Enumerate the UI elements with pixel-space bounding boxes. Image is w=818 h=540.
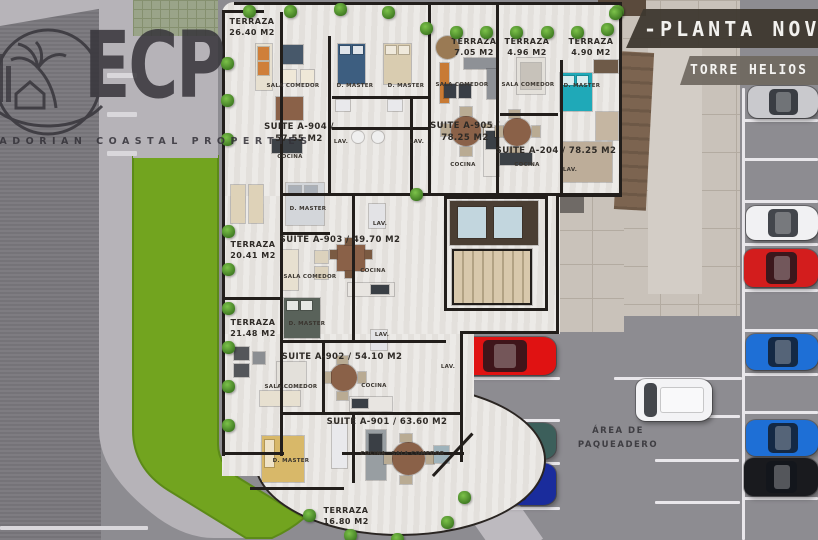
parking-stall-line [744, 411, 818, 414]
parking-stall-line [744, 289, 818, 292]
wall-segment [545, 199, 548, 310]
plant-icon [222, 225, 235, 238]
wall-segment [328, 36, 331, 194]
wall-segment [444, 308, 548, 311]
page-title: -PLANTA NOVENA [626, 17, 818, 41]
wall-segment [619, 2, 622, 197]
room-label: D. MASTER [388, 83, 425, 91]
car-roof [494, 344, 517, 368]
wall-segment [250, 487, 344, 490]
plant-icon [391, 533, 404, 540]
room-label: LAV. [375, 332, 389, 340]
suite-label: SUITE A-204 / 78.25 M2 [496, 146, 617, 158]
room-label: SALA COMEDOR [436, 82, 489, 90]
wall-segment [444, 196, 548, 199]
car-roof [775, 212, 791, 234]
wall-segment [282, 340, 446, 343]
wall-segment [496, 2, 499, 195]
car-roof [660, 387, 704, 414]
suite-label: SUITE A-901 / 63.60 M2 [327, 417, 448, 429]
plant-icon [601, 23, 614, 36]
chair [365, 250, 372, 259]
sofa-cushion [258, 47, 269, 60]
terrace-chair [234, 364, 249, 377]
subtitle-band: TORRE HELIOS [680, 56, 818, 85]
pillow [287, 301, 298, 310]
entry-plaza [558, 196, 624, 332]
wall-segment [500, 113, 558, 116]
dining-table [330, 364, 357, 391]
chair [532, 126, 540, 137]
room-label: LAV. [410, 139, 424, 147]
plant-icon [243, 5, 256, 18]
room-label: D. MASTER [290, 206, 327, 214]
sidewalk-upper [133, 36, 218, 158]
plant-icon [222, 263, 235, 276]
rug [281, 45, 303, 64]
wall-segment [352, 196, 355, 342]
white-car [746, 206, 818, 240]
terrace-label: TERRAZA 20.41 M2 [230, 239, 276, 261]
bath-fixture [336, 100, 350, 111]
wall-segment [332, 127, 428, 130]
wall-segment [282, 412, 462, 415]
room-label: D. MASTER [289, 321, 326, 329]
parking-stall-line [744, 373, 818, 376]
chair [460, 107, 472, 116]
room-label: D. MASTER [564, 83, 601, 91]
pillow [265, 440, 274, 452]
wall-segment [460, 331, 559, 334]
chair [330, 250, 337, 259]
plant-icon [480, 26, 493, 39]
architectural-floorplan-render: TERRAZA 26.40 M2TERRAZA 7.05 M2TERRAZA 4… [0, 0, 818, 540]
wardrobe [594, 60, 618, 73]
plant-icon [222, 380, 235, 393]
tower-name: TORRE HELIOS [690, 63, 808, 78]
plant-icon [344, 529, 357, 540]
room-label: SALA COMEDOR [267, 83, 320, 91]
blue-car [746, 334, 818, 370]
pillow [301, 301, 312, 310]
room-label: SALA COMEDOR [502, 82, 555, 90]
plant-icon [571, 26, 584, 39]
room-label: LAV. [441, 364, 455, 372]
plant-icon [382, 6, 395, 19]
elevator-cab [458, 207, 486, 238]
road-marking [107, 112, 137, 117]
terrace-label: TERRAZA 21.48 M2 [230, 317, 276, 339]
paver-crosswalk [133, 0, 218, 36]
terrace-label: TERRAZA 26.40 M2 [229, 16, 275, 38]
terrace-label: TERRAZA 4.90 M2 [569, 36, 614, 58]
wall-segment [560, 60, 563, 196]
terrace-label: TERRAZA 4.96 M2 [505, 36, 550, 58]
room-label: LAV. [334, 139, 348, 147]
room-label: D. MASTER [337, 83, 374, 91]
car-windshield [644, 383, 658, 417]
plant-icon [222, 341, 235, 354]
room-label: COCINA [514, 162, 539, 170]
pillow [340, 46, 350, 54]
sofa-cushion [258, 62, 269, 75]
room-label: LAV. [373, 221, 387, 229]
parking-stall-line [744, 329, 818, 332]
dresser [596, 112, 618, 140]
room-label: COCINA [361, 383, 386, 391]
bath-fixture [352, 131, 364, 143]
wall-segment [222, 297, 282, 300]
road-marking [0, 526, 148, 530]
room-label: COCINA [360, 451, 385, 459]
blue-car [746, 420, 818, 456]
entry-mat [558, 197, 584, 213]
plant-icon [441, 516, 454, 529]
stairs [452, 249, 532, 305]
plant-icon [221, 94, 234, 107]
room-label: COCINA [450, 162, 475, 170]
room-label: SALA COMEDOR [265, 384, 318, 392]
plant-icon [510, 26, 523, 39]
suite-label: SUITE A-902 / 54.10 M2 [282, 352, 403, 364]
car-roof [775, 426, 791, 449]
plant-icon [458, 491, 471, 504]
dining-table [503, 118, 531, 146]
lounger [249, 185, 263, 223]
parking-stall-line [744, 243, 818, 246]
room-label: COCINA [360, 268, 385, 276]
plant-icon [450, 26, 463, 39]
chair [400, 434, 412, 442]
car-roof [774, 256, 790, 280]
armchair [301, 70, 314, 83]
cooktop [371, 285, 389, 294]
armchair [315, 251, 328, 263]
plant-icon [541, 26, 554, 39]
suite-label: SUITE A-905 / 78.25 M2 [430, 121, 500, 145]
plant-icon [284, 5, 297, 18]
title-band: -PLANTA NOVENA [626, 9, 818, 48]
car-roof [775, 340, 791, 363]
bath-fixture [372, 131, 384, 143]
lounger [231, 185, 245, 223]
room-label: D. MASTER [273, 458, 310, 466]
terrace-label: TERRAZA 7.05 M2 [452, 36, 497, 58]
plant-icon [222, 302, 235, 315]
room-label: COCINA [277, 154, 302, 162]
plant-icon [221, 133, 234, 146]
car-roof [774, 465, 790, 489]
suite-label: SUITE A-903 / 49.70 M2 [280, 235, 401, 247]
bath-fixture [388, 100, 402, 111]
parking-stall-line [744, 497, 818, 500]
pillow [386, 46, 396, 54]
parking-stall-line [744, 119, 818, 122]
silver-car [748, 86, 818, 118]
sofa [464, 58, 498, 69]
parking-stall-line [655, 459, 739, 462]
pillow [353, 46, 363, 54]
terrace-table [253, 352, 265, 364]
room-label: LAV. [563, 167, 577, 175]
terrace-label: TERRAZA 16.80 M2 [323, 505, 369, 527]
sofa [283, 250, 298, 290]
red-car [744, 249, 818, 287]
wall-segment [444, 199, 447, 310]
plant-icon [221, 57, 234, 70]
chair [337, 392, 348, 400]
plant-icon [609, 7, 622, 20]
parking-stall-line [744, 200, 818, 203]
elevator-cab [494, 207, 522, 238]
black-car [744, 458, 818, 496]
chair [358, 372, 366, 383]
chair [400, 476, 412, 484]
dining-table [337, 245, 365, 271]
room-label: SALA COMEDOR [392, 451, 445, 459]
plant-icon [222, 419, 235, 432]
chair [460, 147, 472, 156]
suite-label: SUITE A-904 / 57.55 M2 [264, 122, 334, 146]
parking-area-label: ÁREA DE PAQUEADERO [572, 424, 664, 453]
wall-segment [332, 96, 428, 99]
pillow [399, 46, 409, 54]
parking-stall-line [744, 158, 818, 161]
wall-segment [556, 197, 559, 334]
armchair [283, 70, 296, 83]
car-roof [776, 92, 791, 112]
plant-icon [420, 22, 433, 35]
plant-icon [334, 3, 347, 16]
parking-stall-line [655, 501, 740, 504]
room-label: SALA COMEDOR [284, 274, 337, 282]
plant-icon [410, 188, 423, 201]
plant-icon [303, 509, 316, 522]
cooktop [352, 399, 368, 408]
wall-segment [222, 452, 284, 455]
road-marking [107, 73, 137, 78]
road-marking [107, 151, 137, 156]
white-van [636, 379, 712, 421]
laundry [332, 424, 347, 468]
terrace-chair [234, 347, 249, 360]
